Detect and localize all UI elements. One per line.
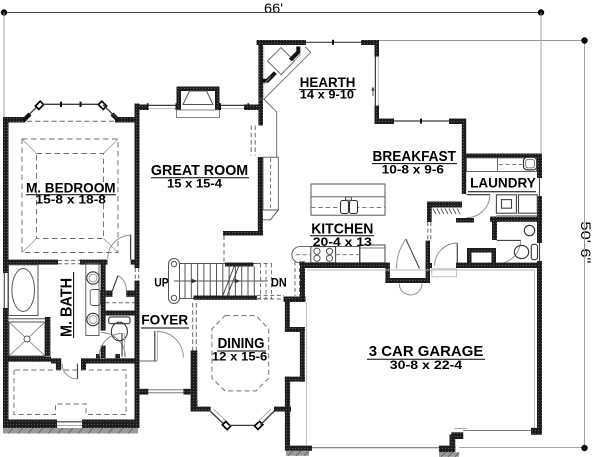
svg-text:15 x 15-4: 15 x 15-4 [167,176,222,190]
svg-text:66': 66' [264,0,283,16]
svg-text:30-8 x 22-4: 30-8 x 22-4 [390,358,463,372]
svg-text:15-8 x 18-8: 15-8 x 18-8 [35,192,106,206]
svg-text:20-4 x 13: 20-4 x 13 [313,235,372,249]
svg-text:LAUNDRY: LAUNDRY [470,176,536,191]
svg-text:FOYER: FOYER [141,313,188,328]
svg-text:DN: DN [271,275,287,289]
svg-text:UP: UP [154,275,169,289]
svg-text:M. BATH: M. BATH [59,278,76,337]
svg-text:14 x 9-10: 14 x 9-10 [300,87,355,101]
svg-text:12 x 15-6: 12 x 15-6 [212,350,268,364]
svg-text:50'-6": 50'-6" [578,221,594,263]
svg-text:10-8 x 9-6: 10-8 x 9-6 [382,163,445,177]
